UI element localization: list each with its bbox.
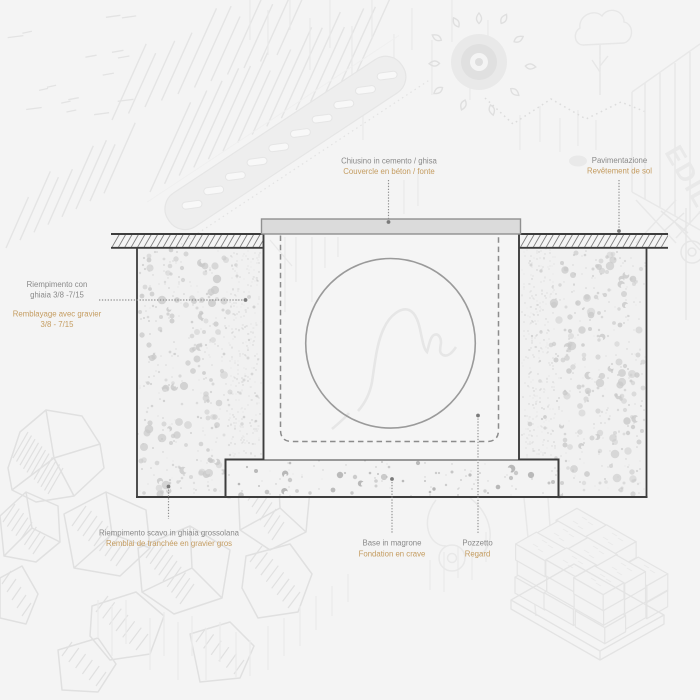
svg-text:Riempimento con: Riempimento con <box>27 280 88 289</box>
svg-text:Regard: Regard <box>465 550 491 559</box>
svg-text:Fondation en crave: Fondation en crave <box>359 550 426 559</box>
svg-text:ghiaia 3/8 -7/15: ghiaia 3/8 -7/15 <box>30 291 84 300</box>
svg-text:Revêtement de sol: Revêtement de sol <box>587 167 652 176</box>
svg-text:Remblai de tranchée en gravier: Remblai de tranchée en gravier gros <box>106 539 232 548</box>
svg-text:Couvercle en béton / fonte: Couvercle en béton / fonte <box>343 167 434 176</box>
svg-text:Pavimentazione: Pavimentazione <box>592 156 647 165</box>
svg-text:Riempimento scavo in ghiaia gr: Riempimento scavo in ghiaia grossolana <box>99 529 240 538</box>
svg-text:Chiusino in cemento / ghisa: Chiusino in cemento / ghisa <box>341 157 437 166</box>
svg-text:Remblayage avec gravier: Remblayage avec gravier <box>13 310 102 319</box>
svg-text:Base in magrone: Base in magrone <box>363 539 422 548</box>
svg-text:Pozzetto: Pozzetto <box>462 539 493 548</box>
svg-text:3/8 - 7/15: 3/8 - 7/15 <box>41 320 75 329</box>
